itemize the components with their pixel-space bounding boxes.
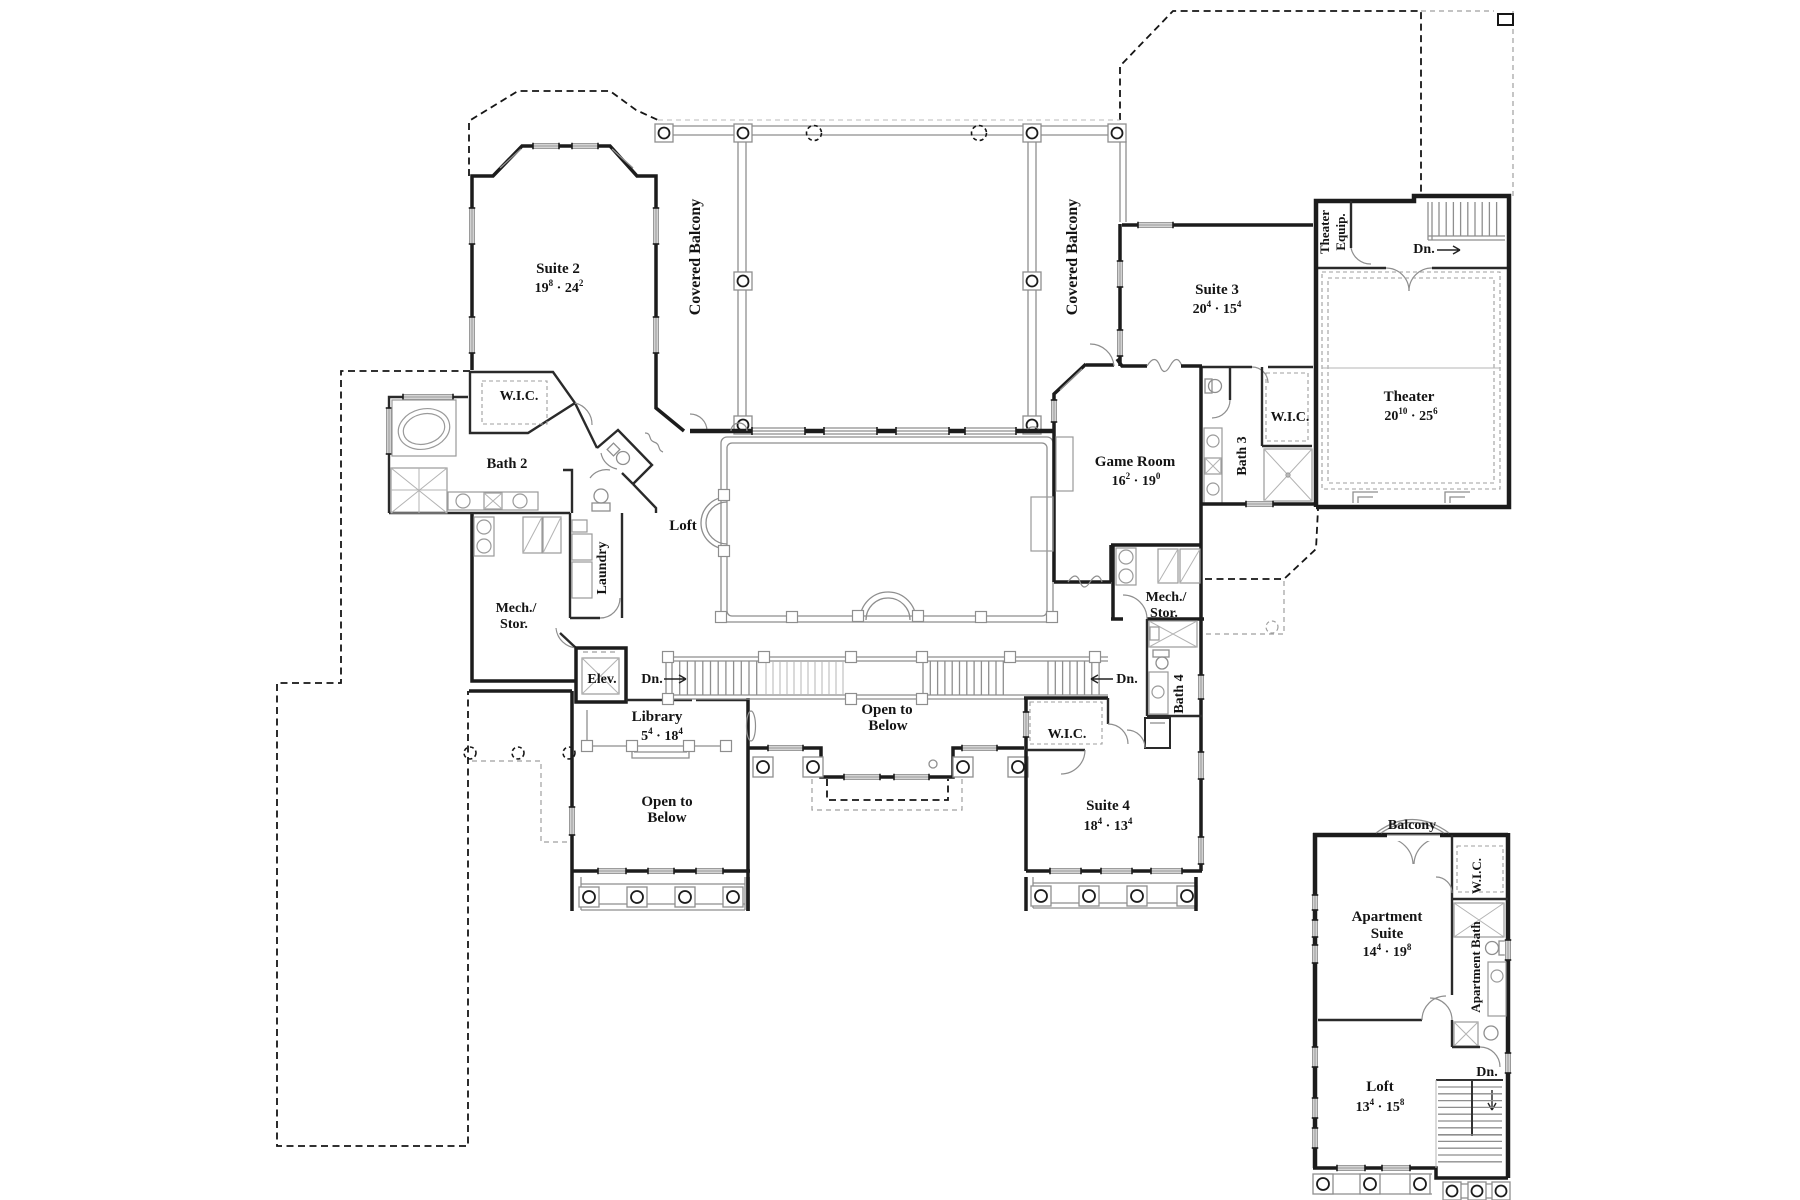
svg-text:Suite 4: Suite 4	[1086, 798, 1130, 814]
svg-text:Dn.: Dn.	[1116, 672, 1137, 687]
svg-text:W.I.C.: W.I.C.	[1271, 410, 1310, 425]
svg-text:Loft: Loft	[669, 518, 697, 534]
svg-text:W.I.C.: W.I.C.	[500, 389, 539, 404]
svg-text:W.I.C.: W.I.C.	[1048, 727, 1087, 742]
svg-text:Suite 3: Suite 3	[1195, 282, 1239, 298]
svg-text:Below: Below	[868, 718, 907, 734]
svg-text:Apartment Bath: Apartment Bath	[1468, 921, 1483, 1013]
svg-text:198 · 242: 198 · 242	[535, 278, 584, 296]
svg-text:144 · 198: 144 · 198	[1363, 942, 1412, 960]
svg-text:Mech./: Mech./	[1146, 590, 1188, 605]
svg-text:Open to: Open to	[861, 702, 912, 718]
svg-text:Suite: Suite	[1371, 926, 1404, 942]
svg-text:Suite 2: Suite 2	[536, 261, 580, 277]
svg-text:Bath 2: Bath 2	[487, 456, 528, 472]
svg-text:Balcony: Balcony	[1388, 818, 1436, 833]
svg-text:Dn.: Dn.	[1476, 1065, 1497, 1080]
svg-text:134 · 158: 134 · 158	[1356, 1097, 1405, 1115]
svg-text:Loft: Loft	[1366, 1079, 1394, 1095]
svg-text:Mech./: Mech./	[496, 601, 538, 616]
svg-text:Covered Balcony: Covered Balcony	[1064, 199, 1081, 316]
svg-text:W.I.C.: W.I.C.	[1469, 858, 1484, 894]
svg-text:Elev.: Elev.	[587, 672, 616, 687]
svg-text:Dn.: Dn.	[1413, 242, 1434, 257]
svg-text:Apartment: Apartment	[1352, 909, 1423, 925]
svg-text:162 · 190: 162 · 190	[1112, 471, 1161, 489]
svg-text:Bath 3: Bath 3	[1235, 436, 1250, 475]
svg-text:Game Room: Game Room	[1095, 454, 1176, 470]
svg-text:184 · 134: 184 · 134	[1084, 816, 1133, 834]
svg-text:Dn.: Dn.	[641, 672, 662, 687]
svg-text:Equip.: Equip.	[1333, 213, 1348, 250]
svg-text:Open to: Open to	[641, 794, 692, 810]
svg-text:Laundry: Laundry	[595, 542, 610, 595]
svg-text:Stor.: Stor.	[1150, 606, 1178, 621]
svg-text:Bath 4: Bath 4	[1172, 674, 1187, 713]
svg-text:Stor.: Stor.	[500, 617, 528, 632]
svg-text:2010 · 256: 2010 · 256	[1384, 406, 1438, 424]
svg-text:Below: Below	[647, 810, 686, 826]
svg-text:204 · 154: 204 · 154	[1193, 299, 1242, 317]
svg-text:Theater: Theater	[1384, 389, 1435, 405]
svg-text:Library: Library	[632, 709, 683, 725]
svg-text:Covered Balcony: Covered Balcony	[687, 199, 704, 316]
svg-text:54 · 184: 54 · 184	[641, 726, 683, 744]
svg-text:Theater: Theater	[1317, 210, 1332, 254]
